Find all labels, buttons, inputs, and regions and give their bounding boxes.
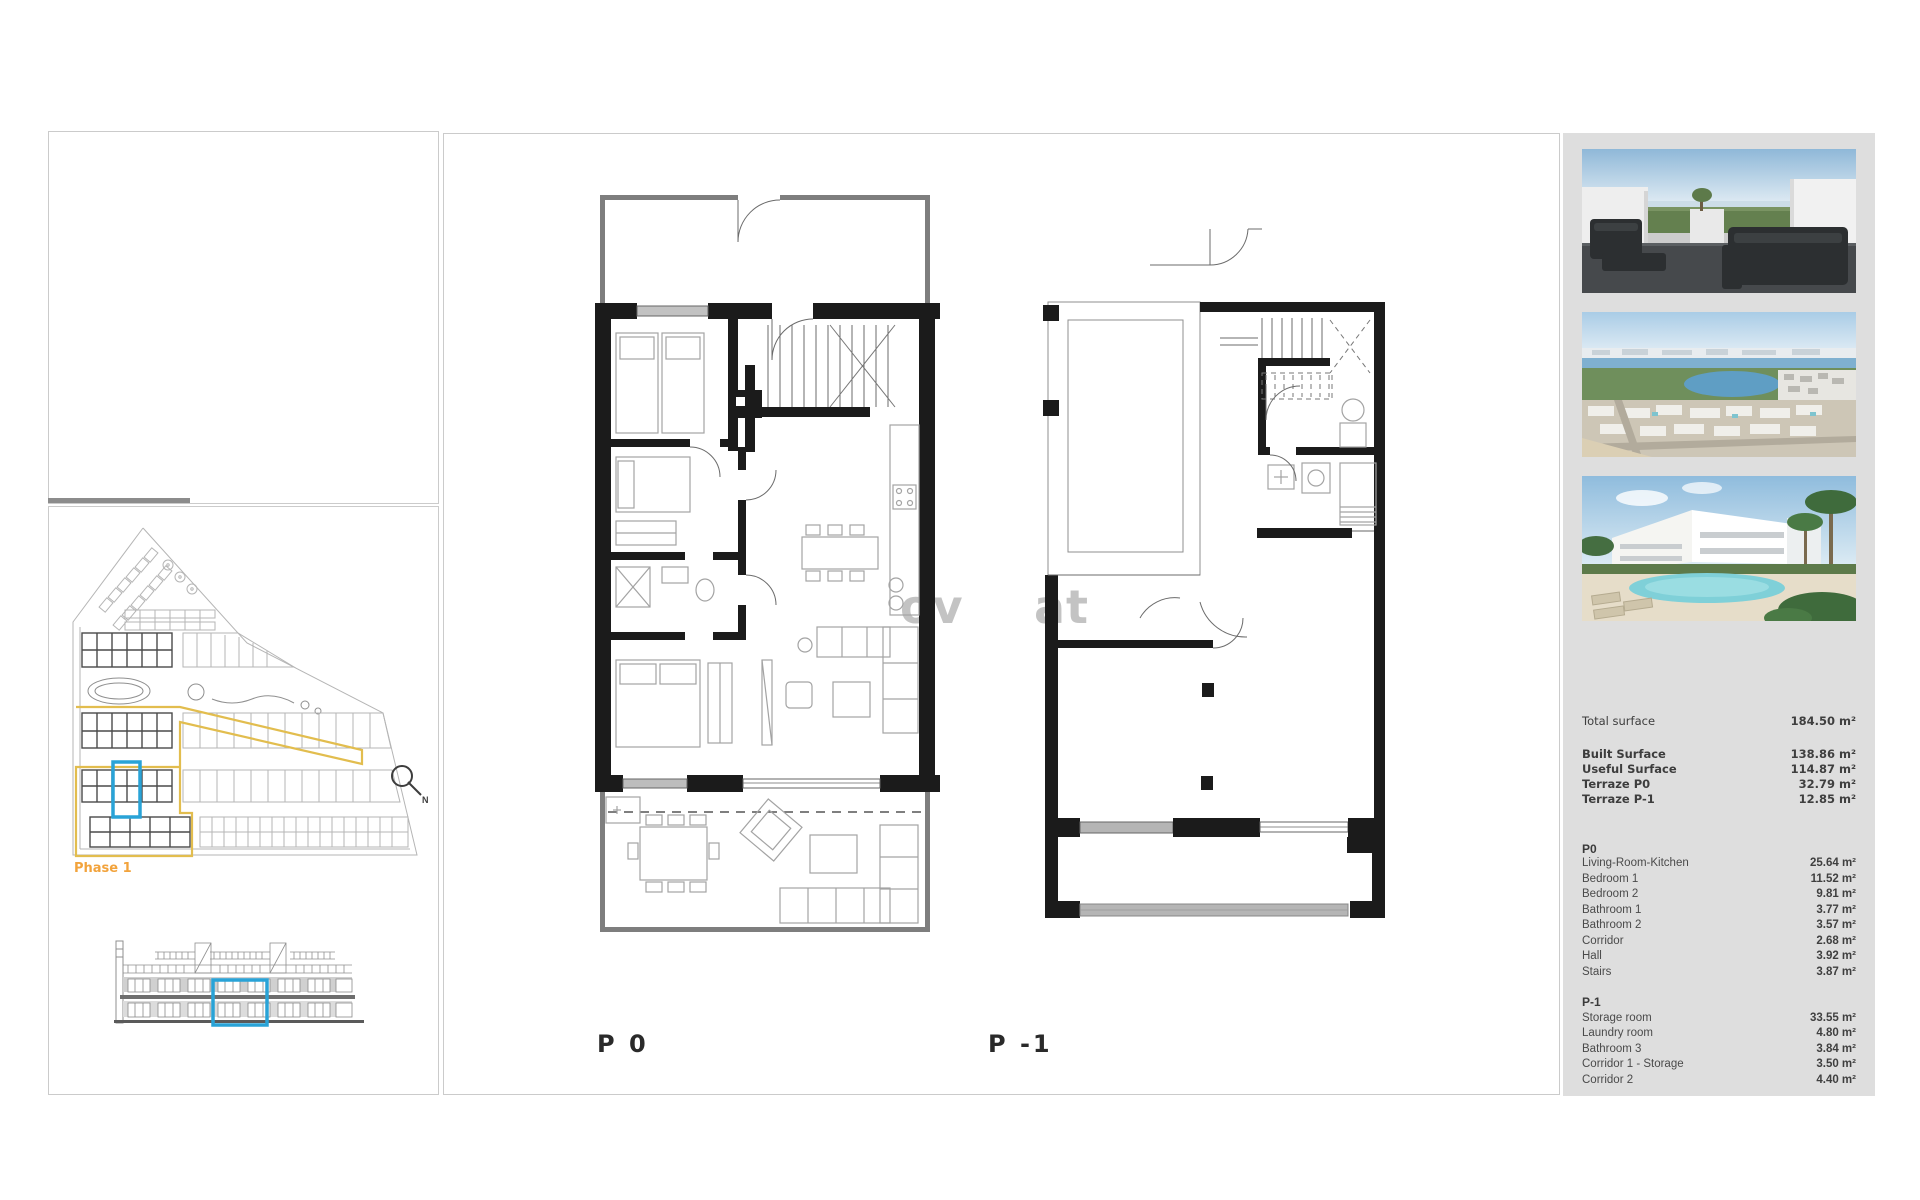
- room-row: Corridor 2.68 m²: [1582, 934, 1856, 948]
- room-row: Storage room 33.55 m²: [1582, 1011, 1856, 1025]
- photo-terrace-render: [1582, 149, 1856, 293]
- aerial-view-illustration: [1582, 312, 1856, 457]
- long-building: [125, 610, 215, 630]
- divider-thick-line: [48, 498, 190, 503]
- room-row: Corridor 1 - Storage 3.50 m²: [1582, 1057, 1856, 1071]
- gardens-band: [88, 678, 321, 714]
- p1-patio: [1043, 302, 1200, 575]
- unit-band-4: [90, 817, 408, 847]
- total-surface-label: Total surface: [1582, 714, 1655, 728]
- p0-bottom-terrace: [600, 792, 930, 932]
- p1-corridor-doors: [1048, 575, 1247, 648]
- p1-section-title: P-1: [1582, 995, 1601, 1009]
- room-row: Bedroom 1 11.52 m²: [1582, 872, 1856, 886]
- roof-railings: [155, 943, 335, 973]
- room-row: Living-Room-Kitchen 25.64 m²: [1582, 856, 1856, 870]
- p0-stairs: [745, 325, 895, 452]
- unit-band-2: [82, 713, 391, 748]
- room-row: Stairs 3.87 m²: [1582, 965, 1856, 979]
- room-row: Bathroom 1 3.77 m²: [1582, 903, 1856, 917]
- p1-bottom-walls: [1045, 818, 1385, 837]
- floor-plan-p1: [1040, 225, 1390, 925]
- pool-villas-illustration: [1582, 476, 1856, 621]
- p1-terrace: [1045, 837, 1385, 918]
- total-surface-value: 184.50 m²: [1791, 714, 1856, 728]
- surface-row: Terraze P-1 12.85 m²: [1582, 792, 1856, 806]
- building-elevation: [100, 935, 370, 1035]
- svg-text:N: N: [422, 795, 429, 805]
- surface-row: Built Surface 138.86 m²: [1582, 747, 1856, 761]
- p0-bedroom2-furniture: [616, 457, 690, 545]
- surface-row: Useful Surface 114.87 m²: [1582, 762, 1856, 776]
- surface-row: Terraze P0 32.79 m²: [1582, 777, 1856, 791]
- p0-label: P 0: [597, 1030, 649, 1058]
- photo-aerial-view: [1582, 312, 1856, 457]
- p0-kitchen: [802, 425, 919, 615]
- floor-plan-p0: [590, 185, 940, 945]
- unit-band-3: [82, 770, 400, 802]
- site-plan: N Phase 1: [60, 515, 440, 895]
- room-row: Corridor 2 4.40 m²: [1582, 1073, 1856, 1087]
- phase-label: Phase 1: [74, 861, 132, 876]
- floorplan-brochure-page: { "watermark": { "left": "ov", "right": …: [0, 0, 1920, 1200]
- site-boundary: [73, 528, 417, 855]
- room-row: Bedroom 2 9.81 m²: [1582, 887, 1856, 901]
- total-surface-row: Total surface 184.50 m²: [1582, 714, 1856, 728]
- p1-bathroom3: [1266, 386, 1366, 447]
- terrace-render-illustration: [1582, 149, 1856, 293]
- second-railing: [123, 965, 352, 973]
- p0-bathroom-furniture: [616, 567, 714, 607]
- p0-bedroom1-furniture: [616, 333, 704, 433]
- p1-label: P -1: [988, 1030, 1053, 1058]
- room-row: Laundry room 4.80 m²: [1582, 1026, 1856, 1040]
- room-row: Bathroom 2 3.57 m²: [1582, 918, 1856, 932]
- p1-laundry: [1268, 455, 1376, 525]
- p0-living-furniture: [762, 627, 918, 745]
- p1-storage-room: [1201, 683, 1214, 790]
- unit-band-1: [82, 633, 294, 667]
- top-left-empty-panel: [48, 131, 439, 504]
- p0-top-terrace: [600, 195, 930, 305]
- room-row: Bathroom 3 3.84 m²: [1582, 1042, 1856, 1056]
- room-row: Hall 3.92 m²: [1582, 949, 1856, 963]
- p1-entry-doors: [1150, 229, 1262, 265]
- photo-pool-villas-render: [1582, 476, 1856, 621]
- p0-master-bed: [616, 660, 732, 747]
- p0-section-title: P0: [1582, 842, 1597, 856]
